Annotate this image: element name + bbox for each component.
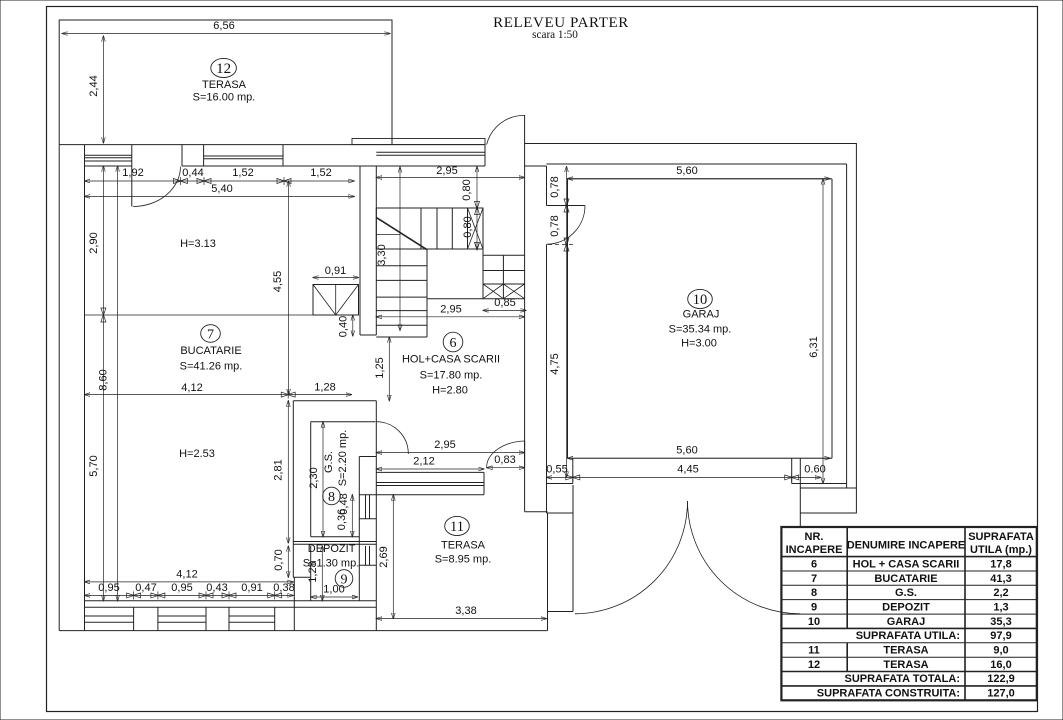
svg-text:2,95: 2,95 [434,439,455,451]
svg-text:S=41.26 mp.: S=41.26 mp. [180,361,243,373]
svg-text:2,90: 2,90 [88,232,100,253]
svg-text:0,91: 0,91 [325,265,346,277]
svg-text:5,40: 5,40 [211,183,232,195]
svg-text:41,3: 41,3 [990,573,1011,585]
svg-text:S=2.20 mp.: S=2.20 mp. [337,430,349,487]
svg-text:2,2: 2,2 [993,587,1008,599]
svg-text:HOL+CASA SCARII: HOL+CASA SCARII [402,354,500,366]
svg-text:5,70: 5,70 [88,455,100,476]
svg-text:2,12: 2,12 [413,456,434,468]
svg-text:2,95: 2,95 [436,165,457,177]
svg-text:TERASA: TERASA [202,79,247,91]
svg-text:S=16.00 mp.: S=16.00 mp. [193,92,256,104]
svg-text:7: 7 [207,328,214,343]
svg-text:9,0: 9,0 [993,645,1008,657]
svg-text:7: 7 [811,573,817,585]
svg-text:3,30: 3,30 [376,244,388,265]
svg-text:H=2.53: H=2.53 [179,448,215,460]
svg-text:0,91: 0,91 [241,582,262,594]
svg-text:DENUMIRE INCAPERE: DENUMIRE INCAPERE [847,540,966,552]
svg-text:TERASA: TERASA [883,659,928,671]
svg-text:HOL + CASA SCARII: HOL + CASA SCARII [853,559,960,571]
svg-text:4,12: 4,12 [176,569,197,581]
svg-text:G.S.: G.S. [323,451,335,473]
svg-text:1,92: 1,92 [122,167,143,179]
svg-text:6,31: 6,31 [808,336,820,357]
svg-text:10: 10 [808,616,820,628]
svg-text:2,30: 2,30 [308,467,320,488]
svg-text:8: 8 [328,490,335,505]
svg-text:0,80: 0,80 [461,179,473,200]
svg-text:9: 9 [811,602,817,614]
svg-text:0,83: 0,83 [494,454,515,466]
svg-text:0,43: 0,43 [206,582,227,594]
svg-text:1,25: 1,25 [374,357,386,378]
svg-text:127,0: 127,0 [987,688,1015,700]
svg-text:6,56: 6,56 [213,20,234,32]
svg-text:0,38: 0,38 [273,582,294,594]
svg-text:0,95: 0,95 [98,582,119,594]
svg-text:0,47: 0,47 [135,582,156,594]
svg-text:H=2.80: H=2.80 [432,385,468,397]
svg-text:SUPRAFATA TOTALA:: SUPRAFATA TOTALA: [845,673,961,685]
svg-text:NR.: NR. [805,531,824,543]
svg-text:DEPOZIT: DEPOZIT [308,543,356,555]
svg-text:2,81: 2,81 [273,459,285,480]
svg-text:11: 11 [450,519,464,535]
svg-text:H=3.00: H=3.00 [681,338,717,350]
svg-text:0,40: 0,40 [338,316,350,337]
svg-text:11: 11 [808,645,820,657]
svg-text:DEPOZIT: DEPOZIT [882,602,930,614]
svg-text:2,44: 2,44 [88,75,100,96]
svg-text:6: 6 [450,336,457,351]
svg-text:12: 12 [216,61,231,77]
svg-text:4,12: 4,12 [181,382,202,394]
svg-text:1,52: 1,52 [310,167,331,179]
svg-text:1,52: 1,52 [232,167,253,179]
svg-text:S=1.30 mp.: S=1.30 mp. [303,558,360,570]
svg-text:16,0: 16,0 [990,659,1011,671]
svg-text:0,44: 0,44 [182,167,203,179]
svg-text:12: 12 [808,659,820,671]
svg-text:0,95: 0,95 [171,582,192,594]
svg-text:0,70: 0,70 [273,549,285,570]
svg-text:BUCATARIE: BUCATARIE [874,573,937,585]
svg-text:1,28: 1,28 [314,382,335,394]
svg-text:S=8.95 mp.: S=8.95 mp. [435,554,492,566]
svg-text:4,75: 4,75 [549,353,561,374]
svg-text:4,45: 4,45 [677,464,698,476]
svg-text:G.S.: G.S. [895,587,917,599]
svg-text:3,38: 3,38 [455,605,476,617]
svg-text:S=17.80 mp.: S=17.80 mp. [420,370,483,382]
svg-text:0,80: 0,80 [462,216,474,237]
svg-text:10: 10 [693,292,708,308]
svg-text:122,9: 122,9 [987,673,1015,685]
svg-text:8,60: 8,60 [98,369,110,390]
svg-text:SUPRAFATA CONSTRUITA:: SUPRAFATA CONSTRUITA: [817,688,960,700]
svg-text:9: 9 [341,573,348,588]
svg-text:4,55: 4,55 [272,271,284,292]
svg-text:scara 1:50: scara 1:50 [532,29,578,41]
svg-text:1,3: 1,3 [993,602,1008,614]
svg-text:5,60: 5,60 [676,165,697,177]
svg-text:0,55: 0,55 [546,464,567,476]
svg-text:SUPRAFATA UTILA:: SUPRAFATA UTILA: [856,630,960,642]
svg-text:INCAPERE: INCAPERE [786,544,843,556]
svg-text:S=35.34 mp.: S=35.34 mp. [669,324,732,336]
svg-text:2,69: 2,69 [378,546,390,567]
svg-text:GARAJ: GARAJ [887,616,926,628]
svg-text:0.60: 0.60 [804,464,825,476]
svg-text:0,78: 0,78 [549,215,561,236]
svg-text:SUPRAFATA: SUPRAFATA [968,531,1034,543]
svg-text:0,36: 0,36 [336,509,348,530]
svg-text:UTILA (mp.): UTILA (mp.) [970,544,1032,556]
svg-text:TERASA: TERASA [883,645,928,657]
svg-text:35,3: 35,3 [990,616,1011,628]
svg-text:0,78: 0,78 [549,176,561,197]
svg-text:97,9: 97,9 [990,630,1011,642]
svg-text:H=3.13: H=3.13 [180,238,216,250]
svg-text:17,8: 17,8 [990,559,1011,571]
svg-text:0,85: 0,85 [494,297,515,309]
svg-text:BUCATARIE: BUCATARIE [180,345,241,357]
svg-text:5,60: 5,60 [676,445,697,457]
svg-text:TERASA: TERASA [441,540,486,552]
svg-text:8: 8 [811,587,817,599]
svg-text:GARAJ: GARAJ [683,309,720,321]
svg-text:2,95: 2,95 [440,304,461,316]
svg-text:6: 6 [811,559,817,571]
